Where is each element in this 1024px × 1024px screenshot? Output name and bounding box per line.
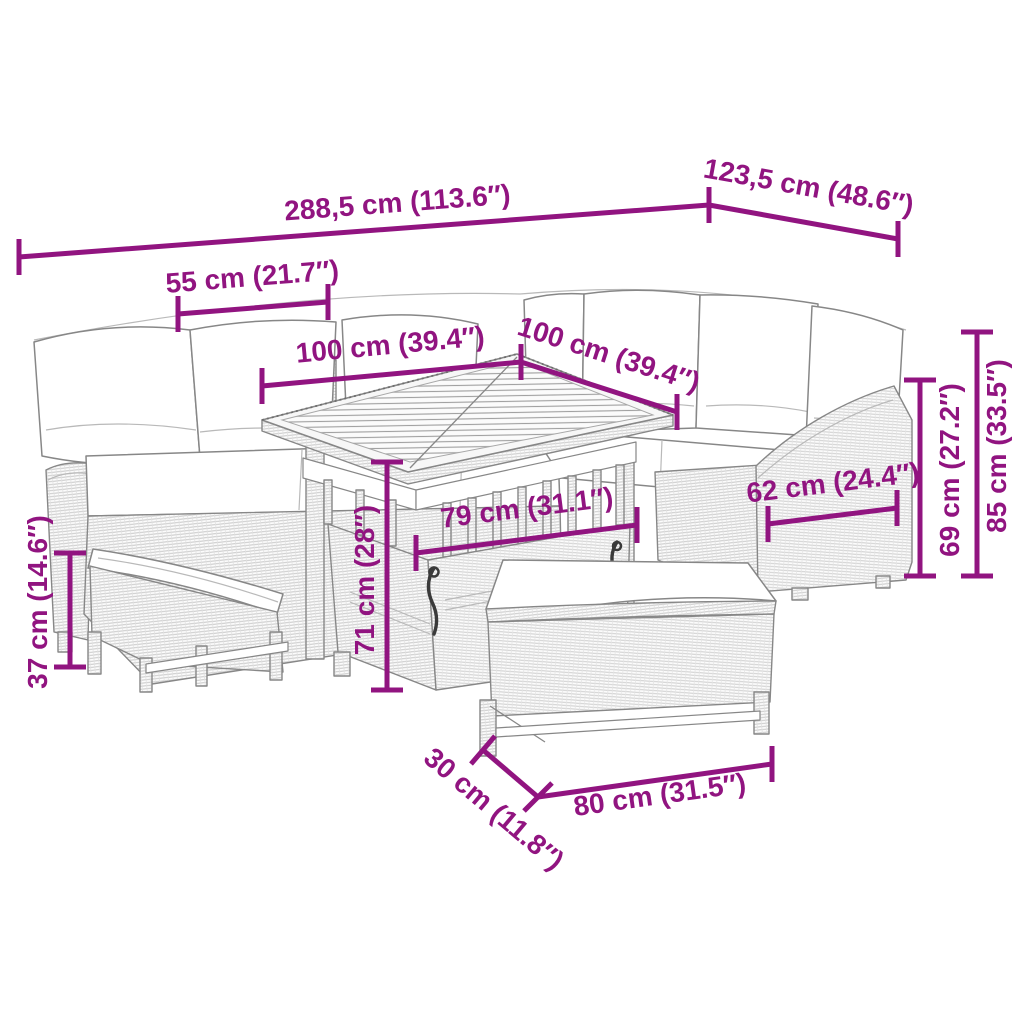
diagram-canvas: 288,5 cm (113.6″) 123,5 cm (48.6″) 55 cm…	[0, 0, 1024, 1024]
dimension-total-depth: 123,5 cm (48.6″)	[701, 153, 916, 257]
furniture-dimension-diagram: 288,5 cm (113.6″) 123,5 cm (48.6″) 55 cm…	[0, 0, 1024, 1024]
dimension-label-table-height: 71 cm (28″)	[349, 505, 380, 655]
bench-right-body	[488, 614, 774, 716]
dimension-label-total-height: 85 cm (33.5″)	[981, 359, 1012, 533]
bench-left-leg	[88, 632, 101, 674]
dimension-bench-length: 80 cm (31.5″)	[538, 746, 772, 822]
dimension-total-height: 85 cm (33.5″)	[961, 332, 1012, 576]
dimension-label-total-width: 288,5 cm (113.6″)	[283, 179, 511, 227]
dimension-total-width: 288,5 cm (113.6″)	[19, 179, 709, 275]
dimension-label-seat-height: 69 cm (27.2″)	[934, 383, 965, 557]
dimension-label-armrest-width: 55 cm (21.7″)	[164, 254, 340, 299]
bench-left-leg	[270, 632, 282, 680]
bench-left-leg	[196, 646, 207, 686]
dimension-bench-depth: 30 cm (11.8″)	[418, 736, 570, 876]
dimension-label-bench-length: 80 cm (31.5″)	[571, 767, 747, 822]
bench-right-stretcher	[496, 711, 760, 737]
dimension-label-bench-height: 37 cm (14.6″)	[22, 515, 53, 689]
bench-right	[480, 560, 776, 756]
table-foot-left	[334, 652, 350, 676]
